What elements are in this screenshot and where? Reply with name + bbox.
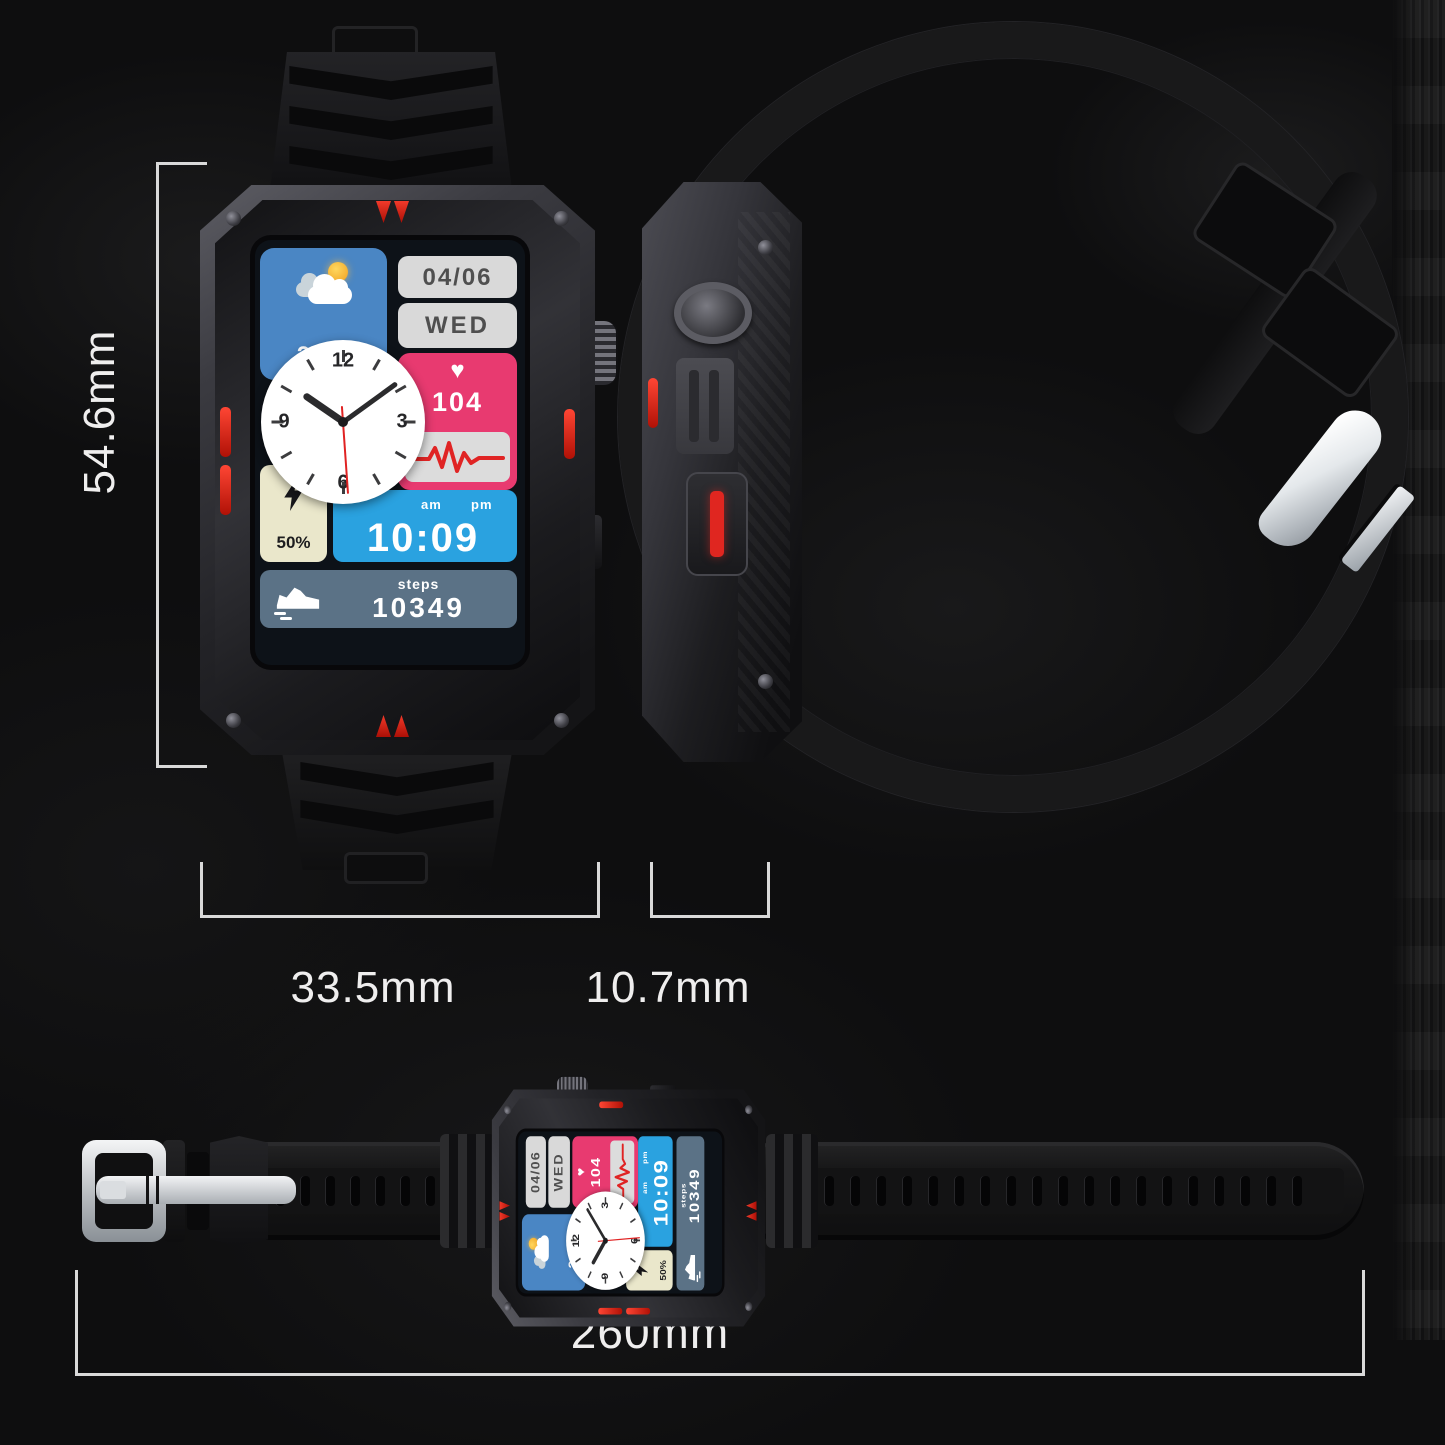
watch-screen: 24°C 04/06 WED ♥ 104 50% [255, 240, 525, 665]
weekday-value: WED [553, 1136, 566, 1207]
height-dimension-tick [156, 162, 207, 165]
date-tile: 04/06 [526, 1136, 546, 1207]
screw-icon [758, 674, 773, 689]
length-dimension-tick [1362, 1270, 1365, 1376]
thickness-dimension-label: 10.7mm [586, 963, 751, 1013]
strap-ridges [766, 1134, 818, 1248]
crown-button [674, 282, 752, 344]
steps-value: 10349 [320, 592, 517, 624]
strap-groove [289, 106, 492, 140]
clock-numeral: 12 [571, 1234, 582, 1247]
shoe-icon [274, 612, 286, 615]
width-dimension-line [200, 915, 600, 918]
watch-front-view: 24°C 04/06 WED ♥ 104 50% [200, 185, 595, 755]
analog-clock: 12 3 6 9 [566, 1192, 645, 1290]
screw-icon [745, 1105, 752, 1114]
steps-label: steps [679, 1136, 687, 1254]
red-side-slit [220, 465, 231, 515]
screw-icon [226, 713, 241, 728]
analog-clock: 12 3 6 9 [261, 340, 425, 504]
strap-holes [778, 1168, 1344, 1214]
pm-label: pm [471, 497, 493, 512]
date-value: 04/06 [398, 264, 517, 292]
side-button [686, 472, 748, 576]
screw-icon [504, 1302, 511, 1311]
rock-edge-texture [1392, 0, 1445, 1340]
width-dimension-tick [200, 862, 203, 918]
bottom-strap-connector [344, 852, 428, 884]
clock-numeral: 12 [332, 350, 354, 373]
screw-icon [554, 211, 569, 226]
sun-cloud-icon [529, 1232, 551, 1270]
battery-value: 50% [659, 1250, 669, 1290]
clock-center-cap [603, 1238, 608, 1244]
height-dimension-label: 54.6mm [75, 330, 125, 495]
shoe-icon [276, 584, 320, 610]
product-dimension-diagram: 24°C 04/06 WED ♥ 104 50% [0, 0, 1445, 1445]
red-side-slit [598, 1308, 622, 1315]
watch-side-view [642, 182, 802, 762]
buckle-tip [1341, 485, 1416, 573]
shoe-icon [697, 1275, 698, 1282]
side-panel [676, 358, 734, 454]
pm-label: pm [641, 1151, 648, 1164]
red-side-slit [626, 1308, 650, 1315]
sun-cloud-icon [294, 262, 358, 308]
width-dimension-tick [597, 862, 600, 918]
thickness-dimension-line [650, 915, 770, 918]
buckle-prong-gap [146, 1176, 149, 1204]
buckle-pin [1280, 395, 1420, 590]
buckle-prong [96, 1176, 296, 1204]
red-side-slit [599, 1102, 623, 1109]
strap-right-flat [762, 1142, 1364, 1240]
steps-tile: steps 10349 [677, 1136, 705, 1290]
strap-groove [289, 66, 492, 100]
clock-center-cap [338, 417, 348, 427]
thickness-dimension-tick [650, 862, 653, 918]
strap-groove [289, 146, 492, 180]
watch-screen: 24°C 04/06 WED ♥ 104 50% [518, 1132, 722, 1294]
screw-icon [554, 713, 569, 728]
clock-numeral: 9 [600, 1273, 611, 1280]
screw-icon [226, 211, 241, 226]
watch-front-view: 24°C 04/06 WED ♥ 104 50% [492, 1090, 766, 1327]
date-tile: 04/06 [398, 256, 517, 298]
top-strap [270, 52, 512, 190]
steps-label: steps [320, 576, 517, 592]
red-side-slit [220, 407, 231, 457]
shoe-icon [699, 1271, 700, 1278]
case-back-texture [738, 212, 790, 732]
buckle-prong-notch [100, 1181, 126, 1199]
strap-groove [300, 762, 493, 796]
strap-groove [300, 800, 493, 834]
strap-ridges [440, 1134, 496, 1248]
thickness-dimension-tick [767, 862, 770, 918]
screw-icon [504, 1105, 511, 1114]
screw-icon [758, 240, 773, 255]
length-dimension-tick [75, 1270, 78, 1376]
steps-tile: steps 10349 [260, 570, 517, 628]
red-button-bar [710, 491, 724, 557]
battery-value: 50% [260, 533, 327, 553]
clock-numeral: 9 [278, 411, 289, 434]
red-side-slit [648, 378, 658, 428]
clock-numeral: 3 [396, 411, 407, 434]
digital-time-value: 10:09 [651, 1139, 673, 1247]
width-dimension-label: 33.5mm [291, 963, 456, 1013]
clock-numeral: 3 [600, 1202, 611, 1209]
shoe-icon [280, 617, 292, 620]
height-dimension-tick [156, 765, 207, 768]
red-side-slit [564, 409, 575, 459]
length-dimension-line [75, 1373, 1365, 1376]
screw-icon [745, 1302, 752, 1311]
steps-value: 10349 [687, 1136, 702, 1254]
rotated-watch-head: 24°C 04/06 WED ♥ 104 50% [492, 1090, 766, 1327]
buckle-prong-gap [156, 1176, 159, 1204]
shoe-icon [683, 1255, 695, 1281]
date-value: 04/06 [530, 1136, 543, 1207]
digital-time-value: 10:09 [333, 516, 513, 561]
weekday-value: WED [398, 312, 517, 340]
height-dimension-line [156, 162, 159, 768]
